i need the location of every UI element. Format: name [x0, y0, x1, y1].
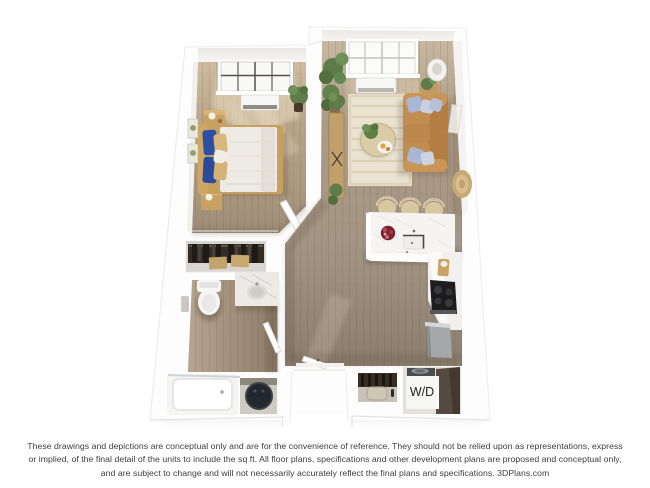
svg-text:W/D: W/D — [410, 385, 434, 399]
